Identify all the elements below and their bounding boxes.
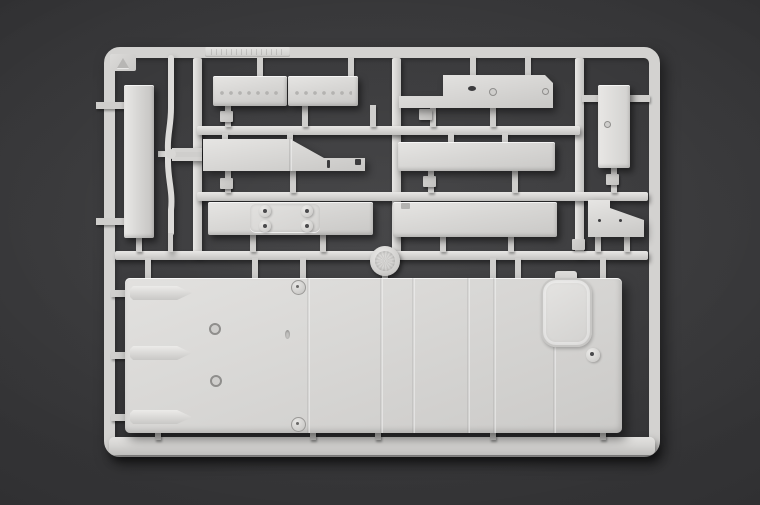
pointed-ridge xyxy=(130,346,192,360)
sloped-bracket-body xyxy=(203,139,365,171)
bracket-slot xyxy=(327,160,330,168)
part-riveted-plank-left xyxy=(213,76,287,106)
panel-rib xyxy=(493,278,496,433)
plank-notch xyxy=(401,203,410,209)
bracket-ring xyxy=(489,88,497,96)
pointed-ridge xyxy=(130,410,192,424)
part-sloped-bracket xyxy=(203,139,365,171)
panel-rib xyxy=(467,278,470,433)
panel-boss xyxy=(586,348,600,362)
panel-rib xyxy=(380,278,383,433)
bracket-hole xyxy=(598,219,601,222)
bracket-hole xyxy=(619,219,622,222)
bolt-boss xyxy=(301,205,313,217)
rod-pin xyxy=(172,157,202,161)
part-bolted-plate-plank xyxy=(208,202,373,235)
part-floor-panel xyxy=(125,278,622,433)
bracket-groove xyxy=(289,139,292,171)
bolt-boss xyxy=(301,220,313,232)
part-riveted-plank-right xyxy=(288,76,358,106)
part-stepped-bracket xyxy=(399,75,553,108)
mold-medallion xyxy=(370,246,400,276)
panel-rib xyxy=(412,278,415,433)
part-vertical-strip xyxy=(124,85,154,238)
panel-hole xyxy=(210,375,222,387)
part-tall-block xyxy=(598,85,630,168)
panel-rivet xyxy=(291,280,306,295)
bolt-boss xyxy=(259,220,271,232)
panel-hole xyxy=(209,323,221,335)
pointed-ridge xyxy=(130,286,192,300)
rivet-row xyxy=(294,89,352,97)
raised-plate xyxy=(250,204,320,232)
panel-rivet xyxy=(291,417,306,432)
bracket-slot xyxy=(355,159,361,165)
part-plain-plank-upper xyxy=(398,142,555,171)
block-hole xyxy=(604,121,611,128)
rod-pin xyxy=(172,148,202,152)
rod-stub xyxy=(168,233,173,252)
panel-seam xyxy=(307,278,310,433)
panel-oval-mark xyxy=(285,330,290,339)
bolt-boss xyxy=(259,205,271,217)
bracket-hole xyxy=(468,86,476,91)
part-plain-plank-lower xyxy=(393,202,557,237)
part-angled-bracket xyxy=(588,200,644,237)
photo-scene xyxy=(0,0,760,505)
rod-body xyxy=(168,58,172,233)
bracket-ring xyxy=(542,88,549,95)
rod-hub xyxy=(166,149,176,159)
stepped-bracket-body xyxy=(399,75,553,108)
oval-hatch xyxy=(541,278,592,347)
rivet-row xyxy=(219,89,281,97)
panel-rib xyxy=(553,347,556,433)
angled-bracket-body xyxy=(588,200,644,237)
